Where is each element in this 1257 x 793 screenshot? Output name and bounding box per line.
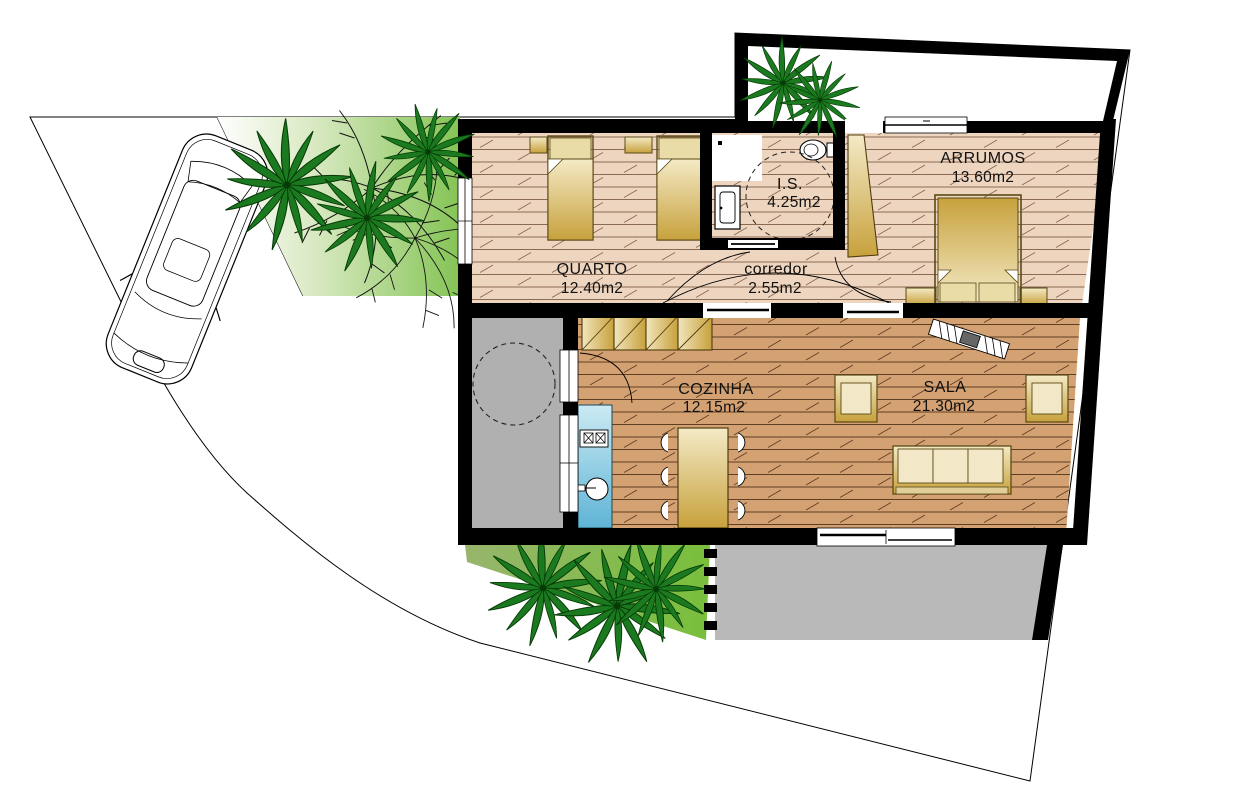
floor-plan-canvas: QUARTO 12.40m2 I.S. 4.25m2 corredor 2.55…	[0, 0, 1257, 793]
window	[885, 117, 967, 133]
sliding-door	[817, 528, 955, 546]
single-bed	[657, 136, 703, 240]
kitchen-counter	[578, 405, 612, 528]
floor-plan-drawing: QUARTO 12.40m2 I.S. 4.25m2 corredor 2.55…	[0, 0, 1257, 793]
sliding-door	[728, 240, 778, 248]
entrance-opening	[845, 119, 883, 133]
quarto-is-wall	[700, 133, 712, 238]
area-arrumos: 13.60m2	[952, 169, 1014, 186]
top-wall	[458, 119, 1116, 133]
wardrobe	[582, 316, 712, 350]
area-quarto: 12.40m2	[561, 280, 623, 297]
area-cozinha: 12.15m2	[683, 399, 745, 416]
window	[560, 350, 578, 512]
label-corredor: corredor	[744, 261, 808, 278]
armchair	[1026, 375, 1068, 422]
bottom-wall	[458, 528, 1080, 545]
label-quarto: QUARTO	[557, 261, 628, 278]
middle-wall	[458, 303, 1090, 318]
armchair	[835, 375, 877, 422]
rear-terrace	[715, 545, 1047, 640]
is-arrumos-wall	[833, 133, 845, 250]
area-sala: 21.30m2	[913, 398, 975, 415]
window	[458, 178, 472, 264]
sliding-door	[703, 303, 771, 318]
label-arrumos: ARRUMOS	[940, 150, 1025, 167]
label-cozinha: COZINHA	[678, 381, 754, 398]
inner-patio	[472, 318, 563, 528]
toilet-icon	[800, 140, 836, 160]
label-is: I.S.	[777, 176, 803, 193]
area-is: 4.25m2	[767, 194, 821, 211]
stove-icon	[580, 430, 608, 447]
label-sala: SALA	[924, 379, 967, 396]
sliding-door	[843, 303, 903, 318]
area-corredor: 2.55m2	[748, 280, 802, 297]
sofa	[893, 446, 1011, 494]
